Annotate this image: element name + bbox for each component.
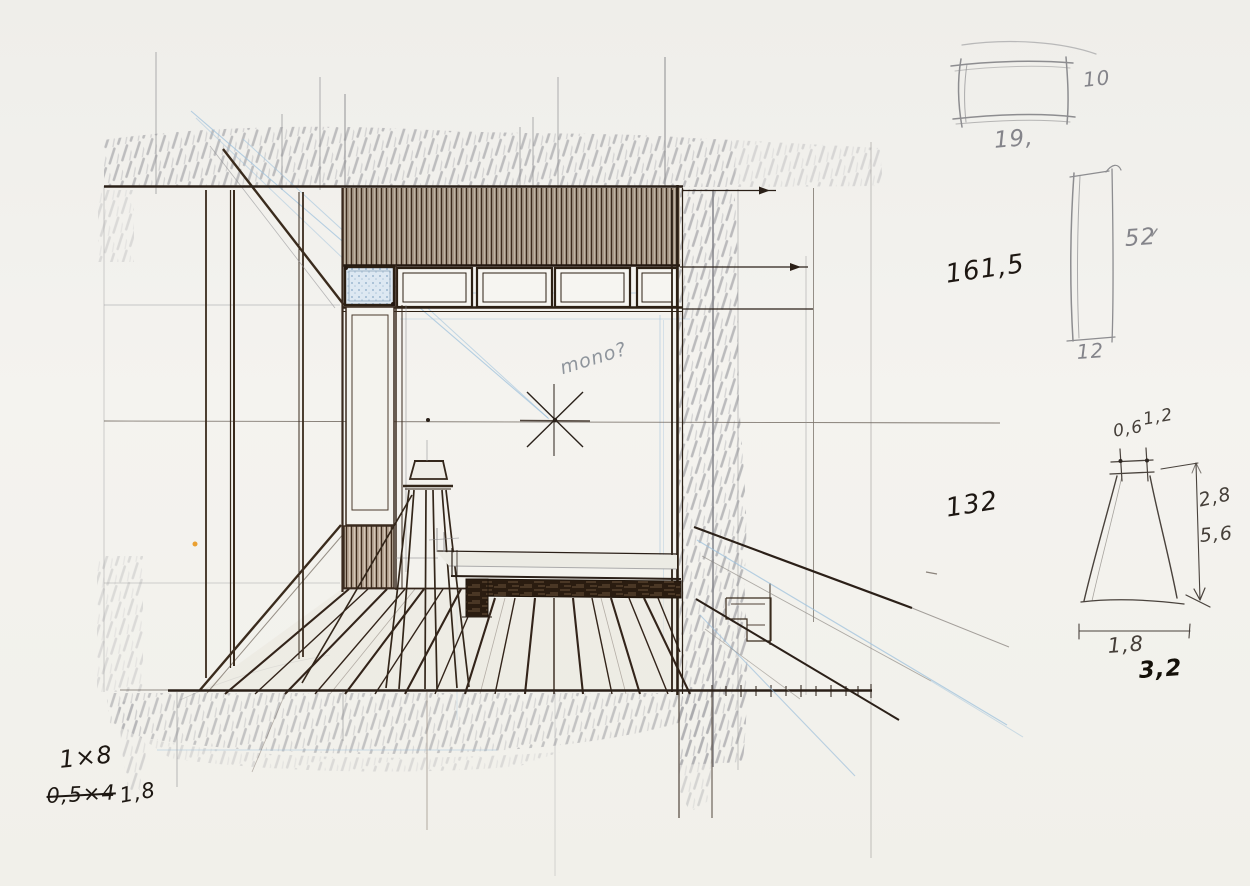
label-calc-line2-struck: 0,5×4 — [46, 782, 116, 807]
glass-block — [344, 266, 395, 306]
perspective-drawing-svg — [0, 0, 1250, 886]
label-post-width: 12 — [1076, 340, 1105, 362]
label-opening-height: 132 — [944, 488, 1000, 522]
label-calc-line1: 1×8 — [58, 742, 114, 771]
label-stool-base-total: 3,2 — [1138, 657, 1183, 683]
orange-dot — [193, 542, 198, 547]
label-post-height: 52 — [1124, 226, 1157, 251]
label-plan-depth: 10 — [1082, 67, 1111, 90]
label-plan-width: 19, — [993, 127, 1034, 153]
label-stool-height-total: 5,6 — [1199, 524, 1234, 546]
sketch-canvas: 10 19, 52 12 161,5 132 0,6 1,2 2,8 5,6 1… — [0, 0, 1250, 886]
label-stool-base-width: 1,8 — [1107, 633, 1145, 656]
slatted-clerestory — [343, 188, 680, 266]
